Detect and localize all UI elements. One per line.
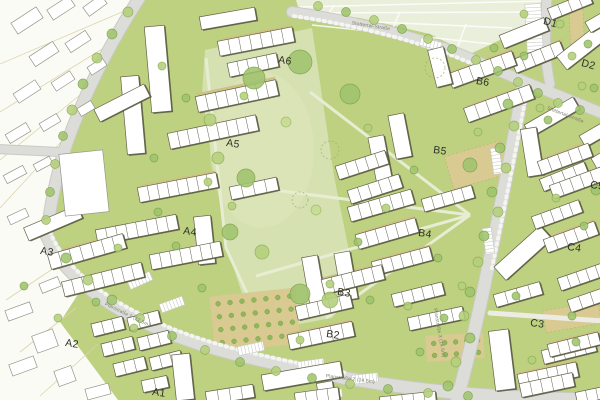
- block-label-c3: C3: [530, 318, 545, 330]
- block-label-b5: B5: [433, 145, 448, 157]
- block-label-b2: B2: [326, 329, 341, 341]
- west-stub-road: [0, 149, 60, 152]
- block-label-a6: A6: [278, 55, 293, 67]
- block-label-a4: A4: [183, 226, 198, 238]
- block-label-b4: B4: [418, 228, 433, 240]
- block-label-c5: C5: [590, 180, 600, 192]
- block-label-a1: A1: [152, 387, 167, 399]
- block-label-b3: B3: [337, 287, 352, 299]
- base-map-graphic: [0, 0, 600, 400]
- block-label-b6: B6: [475, 76, 490, 89]
- site-plan-map[interactable]: A6 A5 A4 A3 A2 A1 B6 B5 B4 B3 B2 C4 C3 C…: [0, 0, 600, 400]
- block-label-a2: A2: [65, 338, 80, 350]
- block-label-a5: A5: [226, 138, 241, 150]
- block-label-a3: A3: [40, 246, 55, 258]
- block-label-c4: C4: [567, 242, 582, 254]
